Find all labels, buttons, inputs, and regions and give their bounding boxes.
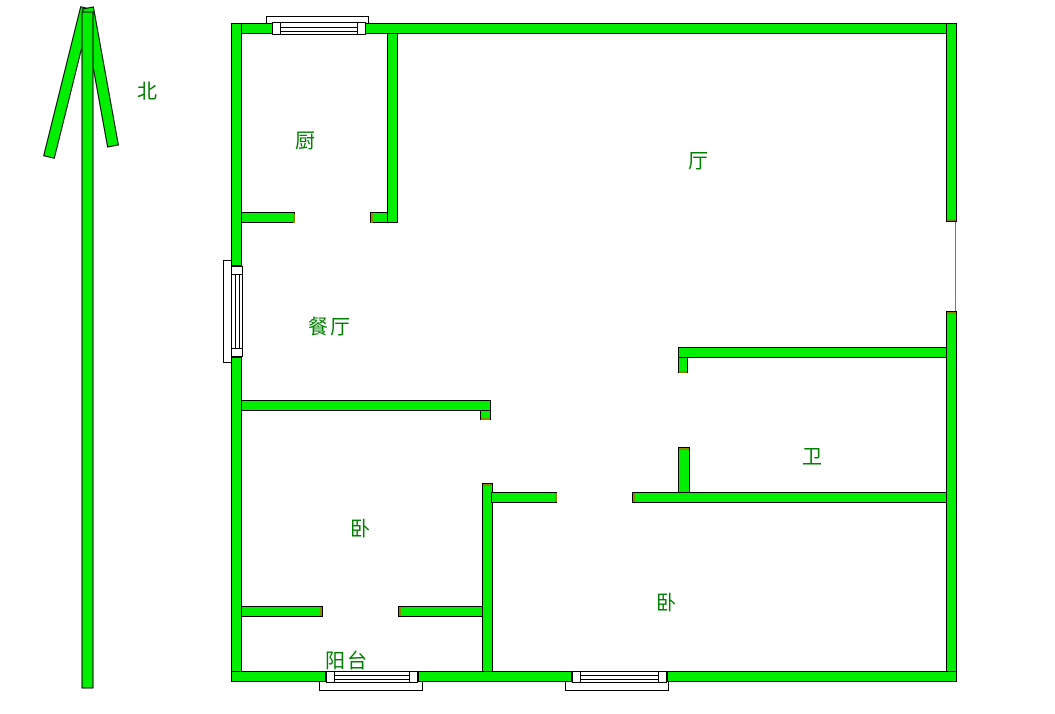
kitchen-window-jamb-left (272, 22, 281, 35)
bedroom-right-window-jamb-right (658, 671, 667, 683)
kitchen-window-jamb-right (357, 22, 366, 35)
bedroom-right-window-pane-2 (581, 679, 658, 680)
kitchen-window-pane-2 (281, 31, 357, 32)
cap-center-vertical-top (483, 484, 492, 486)
cap-corridor-east-start (633, 493, 635, 502)
bathroom-door-pier (678, 447, 690, 493)
left-window-pane-2 (239, 275, 240, 348)
bedroom-right-window-jamb-left (572, 671, 581, 683)
balcony-window-pane-2 (335, 679, 409, 680)
cap-kitchen-south-east (371, 214, 373, 223)
bedroom-left-south-west (241, 606, 323, 617)
room-label-balcony: 阳台 (325, 645, 369, 674)
kitchen-window-pane-1 (281, 27, 357, 28)
outer-bottom-east (667, 671, 957, 682)
kitchen-south-west (241, 212, 295, 223)
bedroom-right-window-body (572, 671, 667, 683)
outer-top-main (365, 23, 957, 34)
kitchen-window-body (272, 22, 366, 35)
bedroom-left-south-east (398, 606, 483, 617)
room-label-dining-room: 餐厅 (308, 311, 352, 340)
compass-north-label: 北 (137, 75, 157, 104)
left-window-body (231, 266, 243, 357)
outer-right-lower (946, 311, 957, 682)
bathroom-north (678, 347, 947, 358)
room-label-bathroom: 卫 (802, 441, 824, 470)
north-arrow-shaft (82, 12, 93, 688)
outer-right-upper (946, 23, 957, 222)
corridor-west (491, 492, 557, 503)
cap-bathroom-stub-bottom (679, 371, 687, 373)
left-window-jamb-top (231, 266, 243, 275)
floor-plan-canvas: 北 厨厅餐厅卧卫卧阳台 (0, 0, 1055, 714)
room-label-bedroom-left: 卧 (350, 513, 372, 542)
bedroom-left-north (241, 400, 491, 411)
outer-bottom-west (231, 671, 326, 682)
outer-left-upper (231, 23, 242, 266)
room-label-kitchen: 厨 (295, 125, 317, 154)
left-window-jamb-bottom (231, 348, 243, 357)
left-window-pane-1 (235, 275, 236, 348)
kitchen-east (387, 33, 398, 223)
north-arrow-icon (40, 0, 140, 700)
balcony-window-jamb-right (409, 671, 418, 683)
center-vertical (482, 483, 493, 672)
cap-bed1-south-west-end (320, 607, 322, 616)
cap-corridor-west-end (555, 493, 557, 502)
outer-bottom-mid (418, 671, 572, 682)
cap-right-wall-gap-bottom (947, 312, 956, 314)
cap-kitchen-south-end (293, 214, 295, 223)
cap-bed1-north-stub (481, 418, 490, 420)
balcony-window-pane-1 (335, 675, 409, 676)
cap-right-wall-gap-top (947, 219, 956, 221)
corridor-east (632, 492, 947, 503)
room-label-bedroom-right: 卧 (656, 587, 678, 616)
cap-bed1-south-east-start (399, 607, 401, 616)
living-room-east-opening-line (955, 222, 956, 311)
cap-bathroom-pier-top (679, 448, 689, 450)
bedroom-right-window-pane-1 (581, 675, 658, 676)
room-label-living-room: 厅 (688, 145, 710, 174)
